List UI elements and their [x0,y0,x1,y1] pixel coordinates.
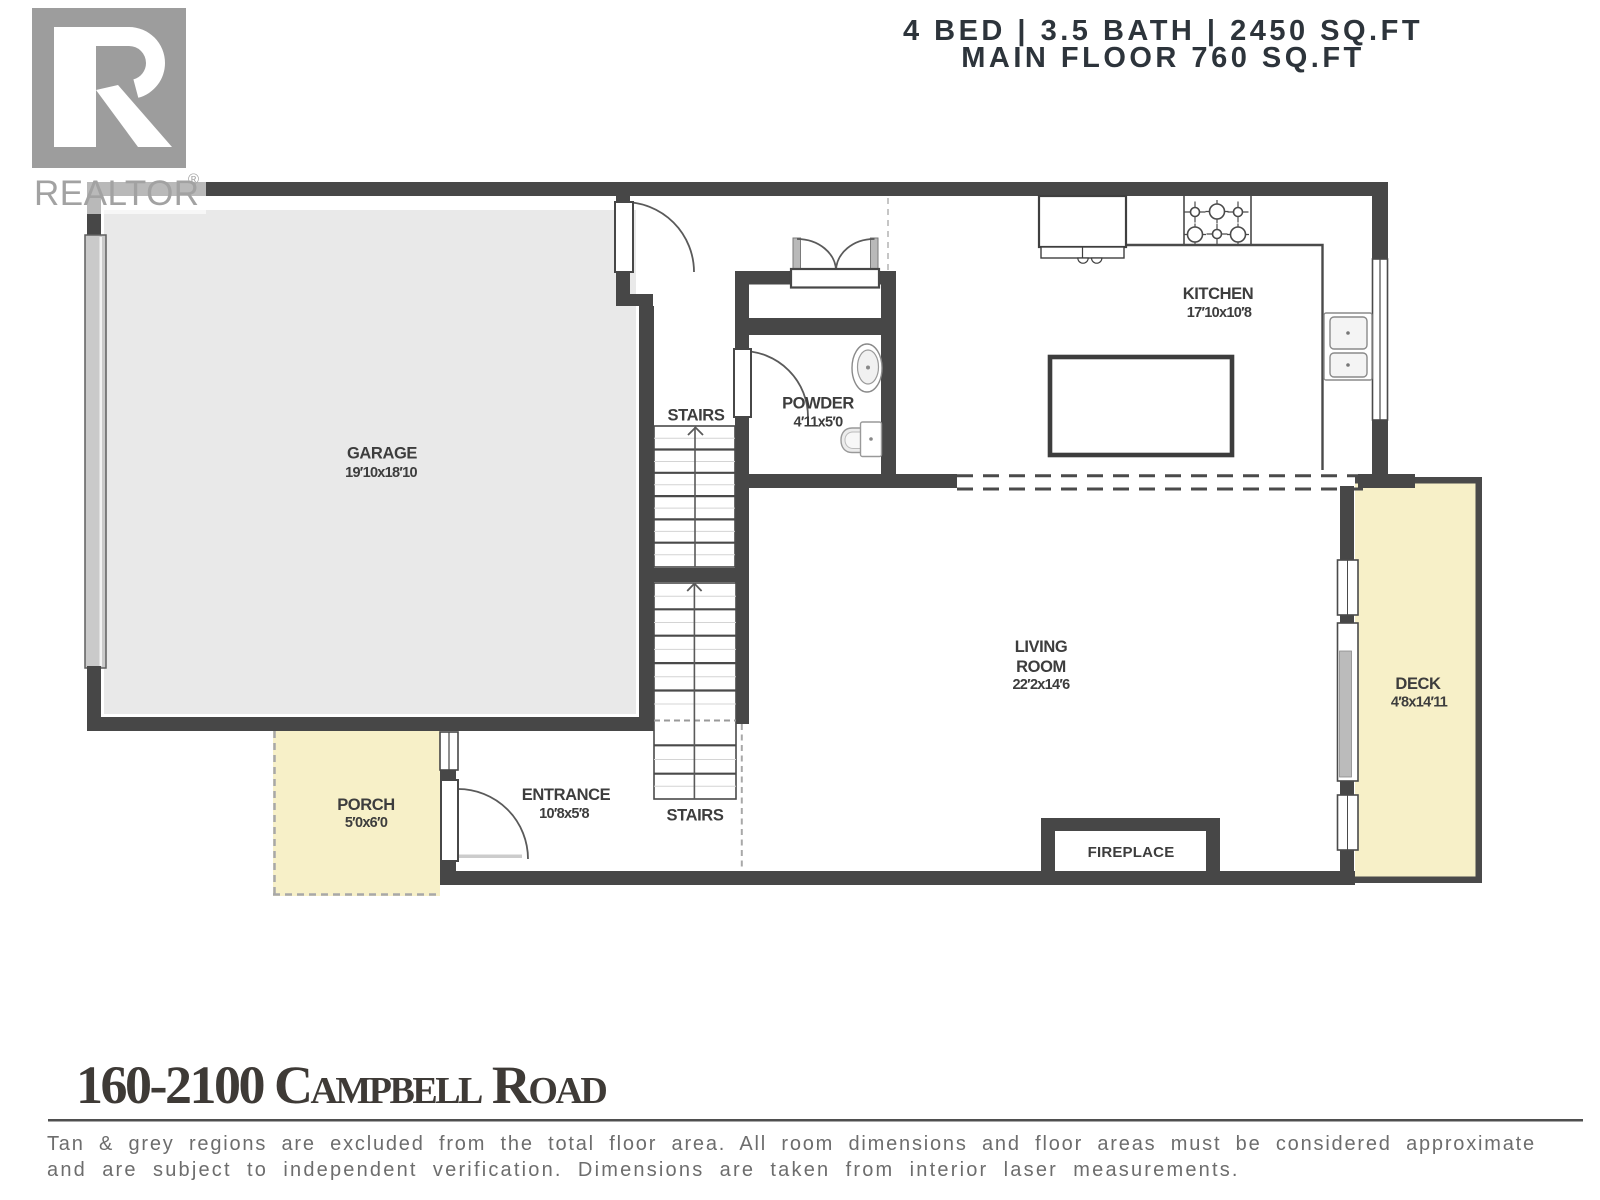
svg-text:POWDER: POWDER [782,395,854,413]
svg-text:160-2100 Campbell Road: 160-2100 Campbell Road [76,1055,606,1115]
svg-text:REALTOR: REALTOR [34,174,200,213]
svg-text:22′2x14′6: 22′2x14′6 [1012,677,1070,693]
svg-text:ROOM: ROOM [1016,658,1066,676]
svg-text:®: ® [188,171,199,188]
svg-text:17′10x10′8: 17′10x10′8 [1187,305,1252,321]
svg-text:19′10x18′10: 19′10x18′10 [345,465,417,481]
svg-text:KITCHEN: KITCHEN [1183,285,1254,303]
svg-text:FIREPLACE: FIREPLACE [1088,844,1175,861]
svg-text:LIVING: LIVING [1015,638,1068,656]
svg-text:DECK: DECK [1395,675,1441,693]
svg-text:10′8x5′8: 10′8x5′8 [539,806,589,822]
svg-text:STAIRS: STAIRS [667,807,724,825]
svg-text:4′11x5′0: 4′11x5′0 [794,415,844,431]
svg-text:PORCH: PORCH [337,796,395,814]
svg-text:5′0x6′0: 5′0x6′0 [345,815,388,831]
svg-text:GARAGE: GARAGE [347,445,417,463]
svg-text:4′8x14′11: 4′8x14′11 [1391,695,1448,711]
svg-text:STAIRS: STAIRS [668,407,725,425]
svg-text:MAIN FLOOR 760 SQ.FT: MAIN FLOOR 760 SQ.FT [961,42,1365,74]
svg-text:ENTRANCE: ENTRANCE [522,786,611,804]
svg-text:and are subject to independent: and are subject to independent verificat… [47,1159,1240,1181]
svg-text:Tan & grey regions are exclude: Tan & grey regions are excluded from the… [47,1133,1536,1155]
